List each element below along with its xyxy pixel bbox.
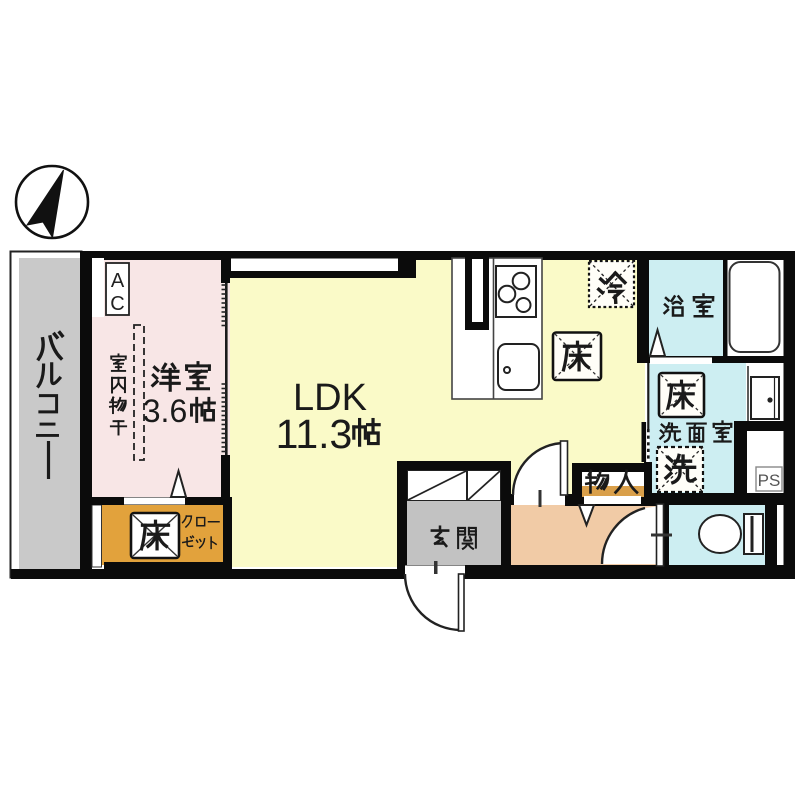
svg-text:C: C [110,293,124,315]
svg-text:11.3: 11.3 [276,411,353,457]
svg-text:3.6: 3.6 [143,393,187,429]
svg-text:PS: PS [758,471,781,490]
svg-text:A: A [111,270,125,292]
